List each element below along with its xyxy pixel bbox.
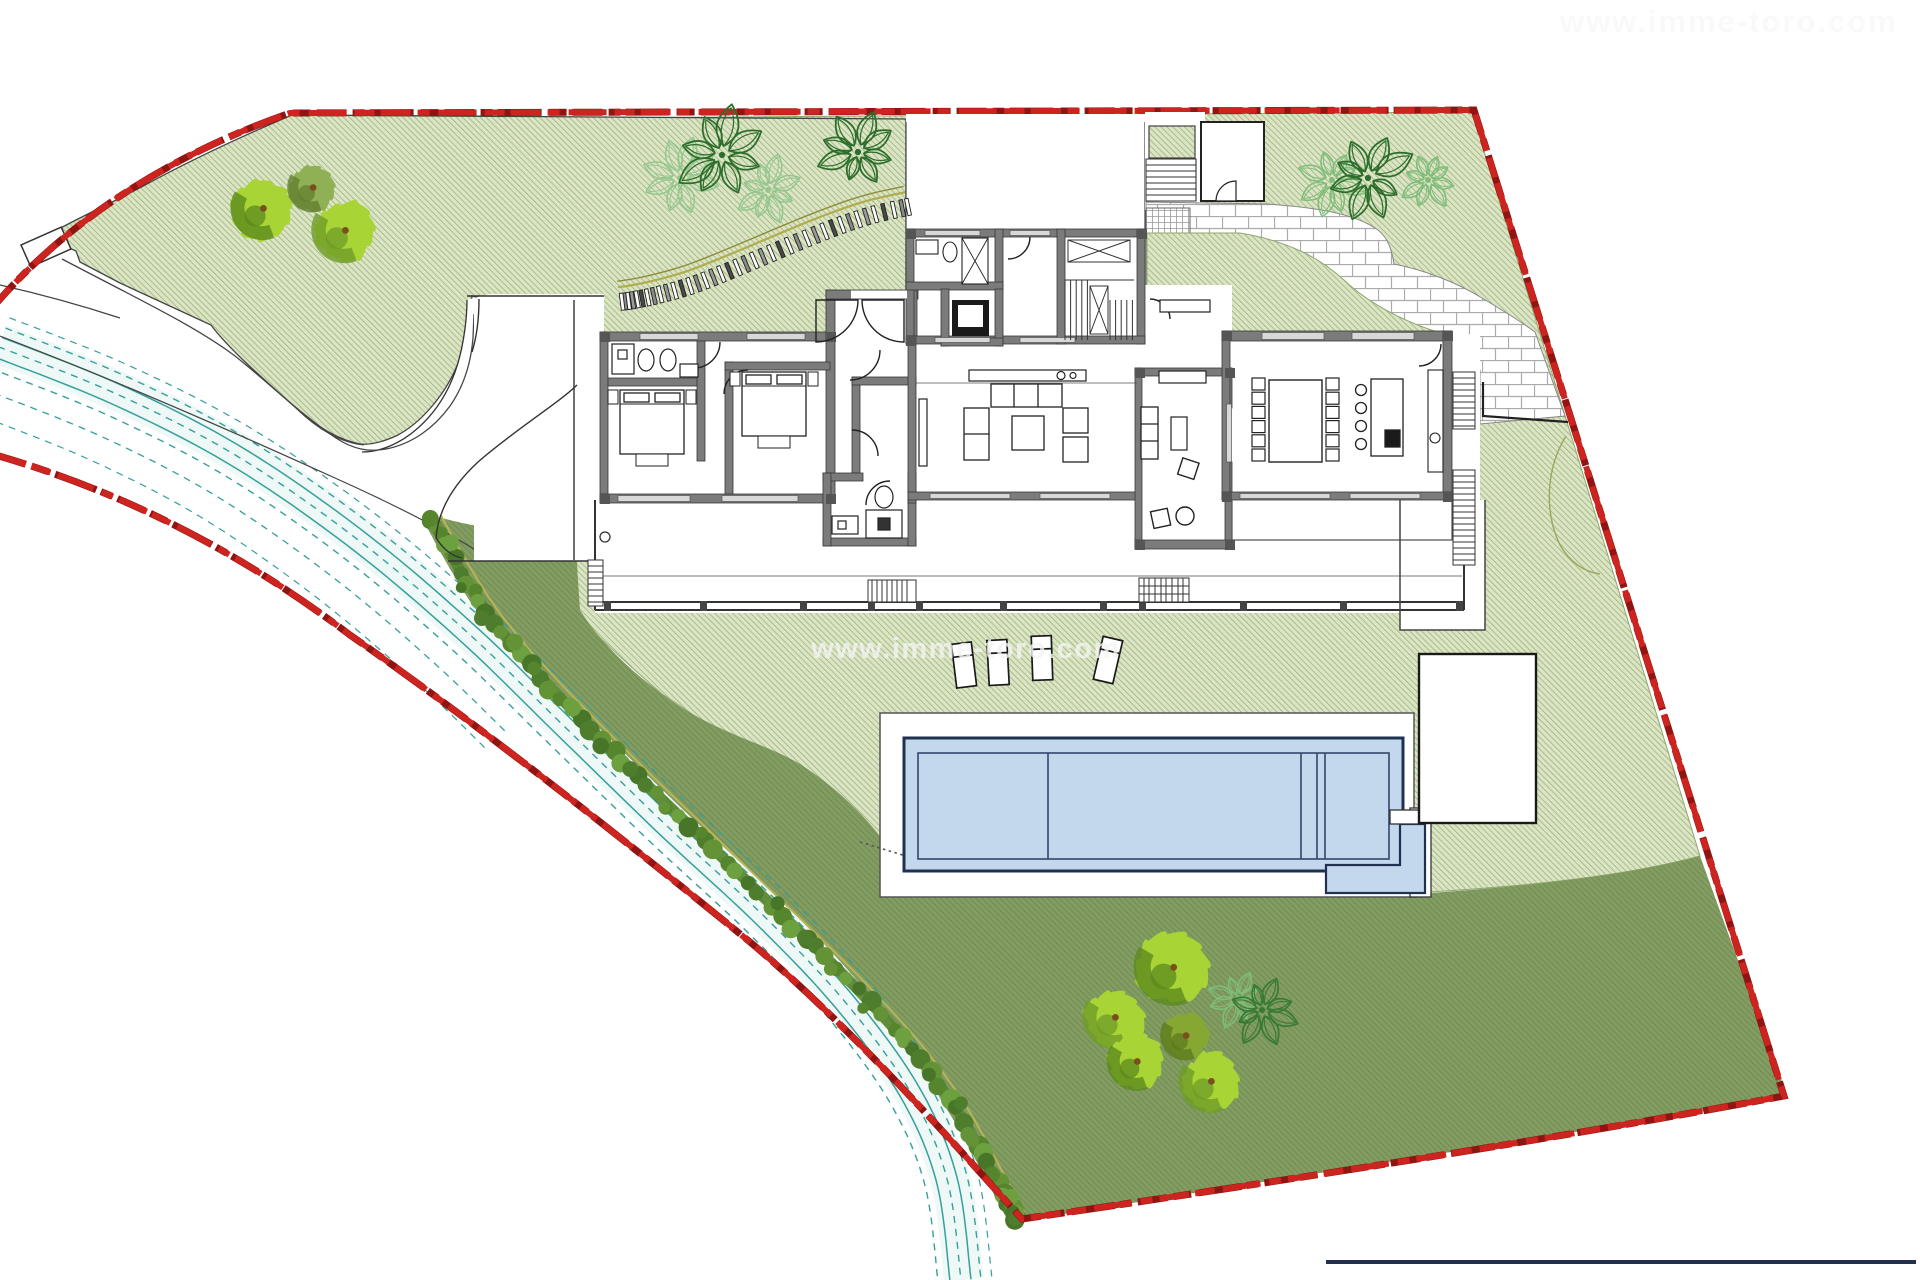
svg-text:www.imme-toro.com: www.imme-toro.com xyxy=(810,633,1121,665)
svg-text:www.imme-toro.com: www.imme-toro.com xyxy=(1559,4,1898,39)
